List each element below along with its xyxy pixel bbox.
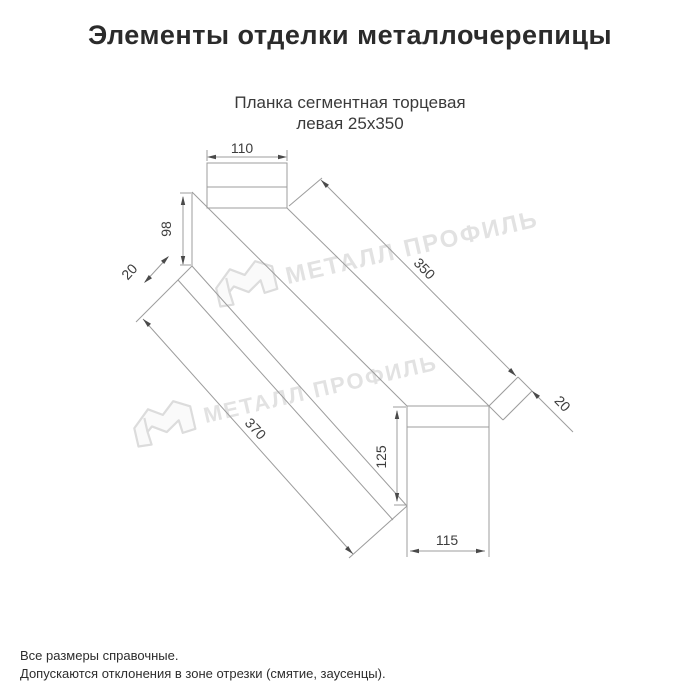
far-hem-and-370-extension bbox=[136, 266, 192, 322]
near-flap-base-edge bbox=[489, 406, 503, 420]
dim-label-98: 98 bbox=[158, 221, 174, 237]
product-name: Планка сегментная торцевая левая 25х350 bbox=[0, 92, 700, 134]
dimension-arrowheads bbox=[143, 155, 540, 554]
page: МЕТАЛЛ ПРОФИЛЬ МЕТАЛЛ ПРОФИЛЬ Элементы о… bbox=[0, 0, 700, 700]
strip-edge-hem-tip bbox=[178, 280, 393, 520]
note-deviations: Допускаются отклонения в зоне отрезки (с… bbox=[20, 665, 386, 683]
dim-label-20-far: 20 bbox=[118, 260, 140, 282]
footnotes: Все размеры справочные. Допускаются откл… bbox=[20, 647, 386, 683]
dim125-extension-ticks bbox=[393, 407, 406, 505]
page-title: Элементы отделки металлочерепицы bbox=[0, 20, 700, 51]
near-flap-inner-edge bbox=[489, 377, 518, 406]
dim-label-20-near: 20 bbox=[551, 392, 573, 414]
dim350-line bbox=[321, 180, 516, 376]
strip-edge-top-left bbox=[192, 192, 407, 406]
product-name-line2: левая 25х350 bbox=[0, 113, 700, 134]
far-flange-face bbox=[207, 163, 287, 208]
dimension-labels: 110 98 20 350 370 125 115 20 bbox=[118, 140, 574, 548]
near-flap-outer-edge bbox=[503, 391, 532, 420]
dim-label-110: 110 bbox=[231, 140, 254, 156]
dim-label-350: 350 bbox=[411, 255, 439, 283]
drawing-lines bbox=[136, 150, 573, 558]
dim350-far-extension bbox=[289, 178, 322, 206]
dim-label-125: 125 bbox=[373, 445, 389, 469]
strip-edge-top-right bbox=[287, 208, 489, 406]
dim370-line bbox=[143, 319, 353, 554]
note-dimensions-reference: Все размеры справочные. bbox=[20, 647, 386, 665]
near-hem-and-370-extension bbox=[349, 506, 407, 558]
near-flap-end-edge bbox=[518, 377, 532, 391]
strip-edge-web-bottom bbox=[192, 266, 407, 506]
dim-label-115: 115 bbox=[436, 532, 459, 548]
dim-label-370: 370 bbox=[242, 415, 270, 443]
product-name-line1: Планка сегментная торцевая bbox=[0, 92, 700, 113]
